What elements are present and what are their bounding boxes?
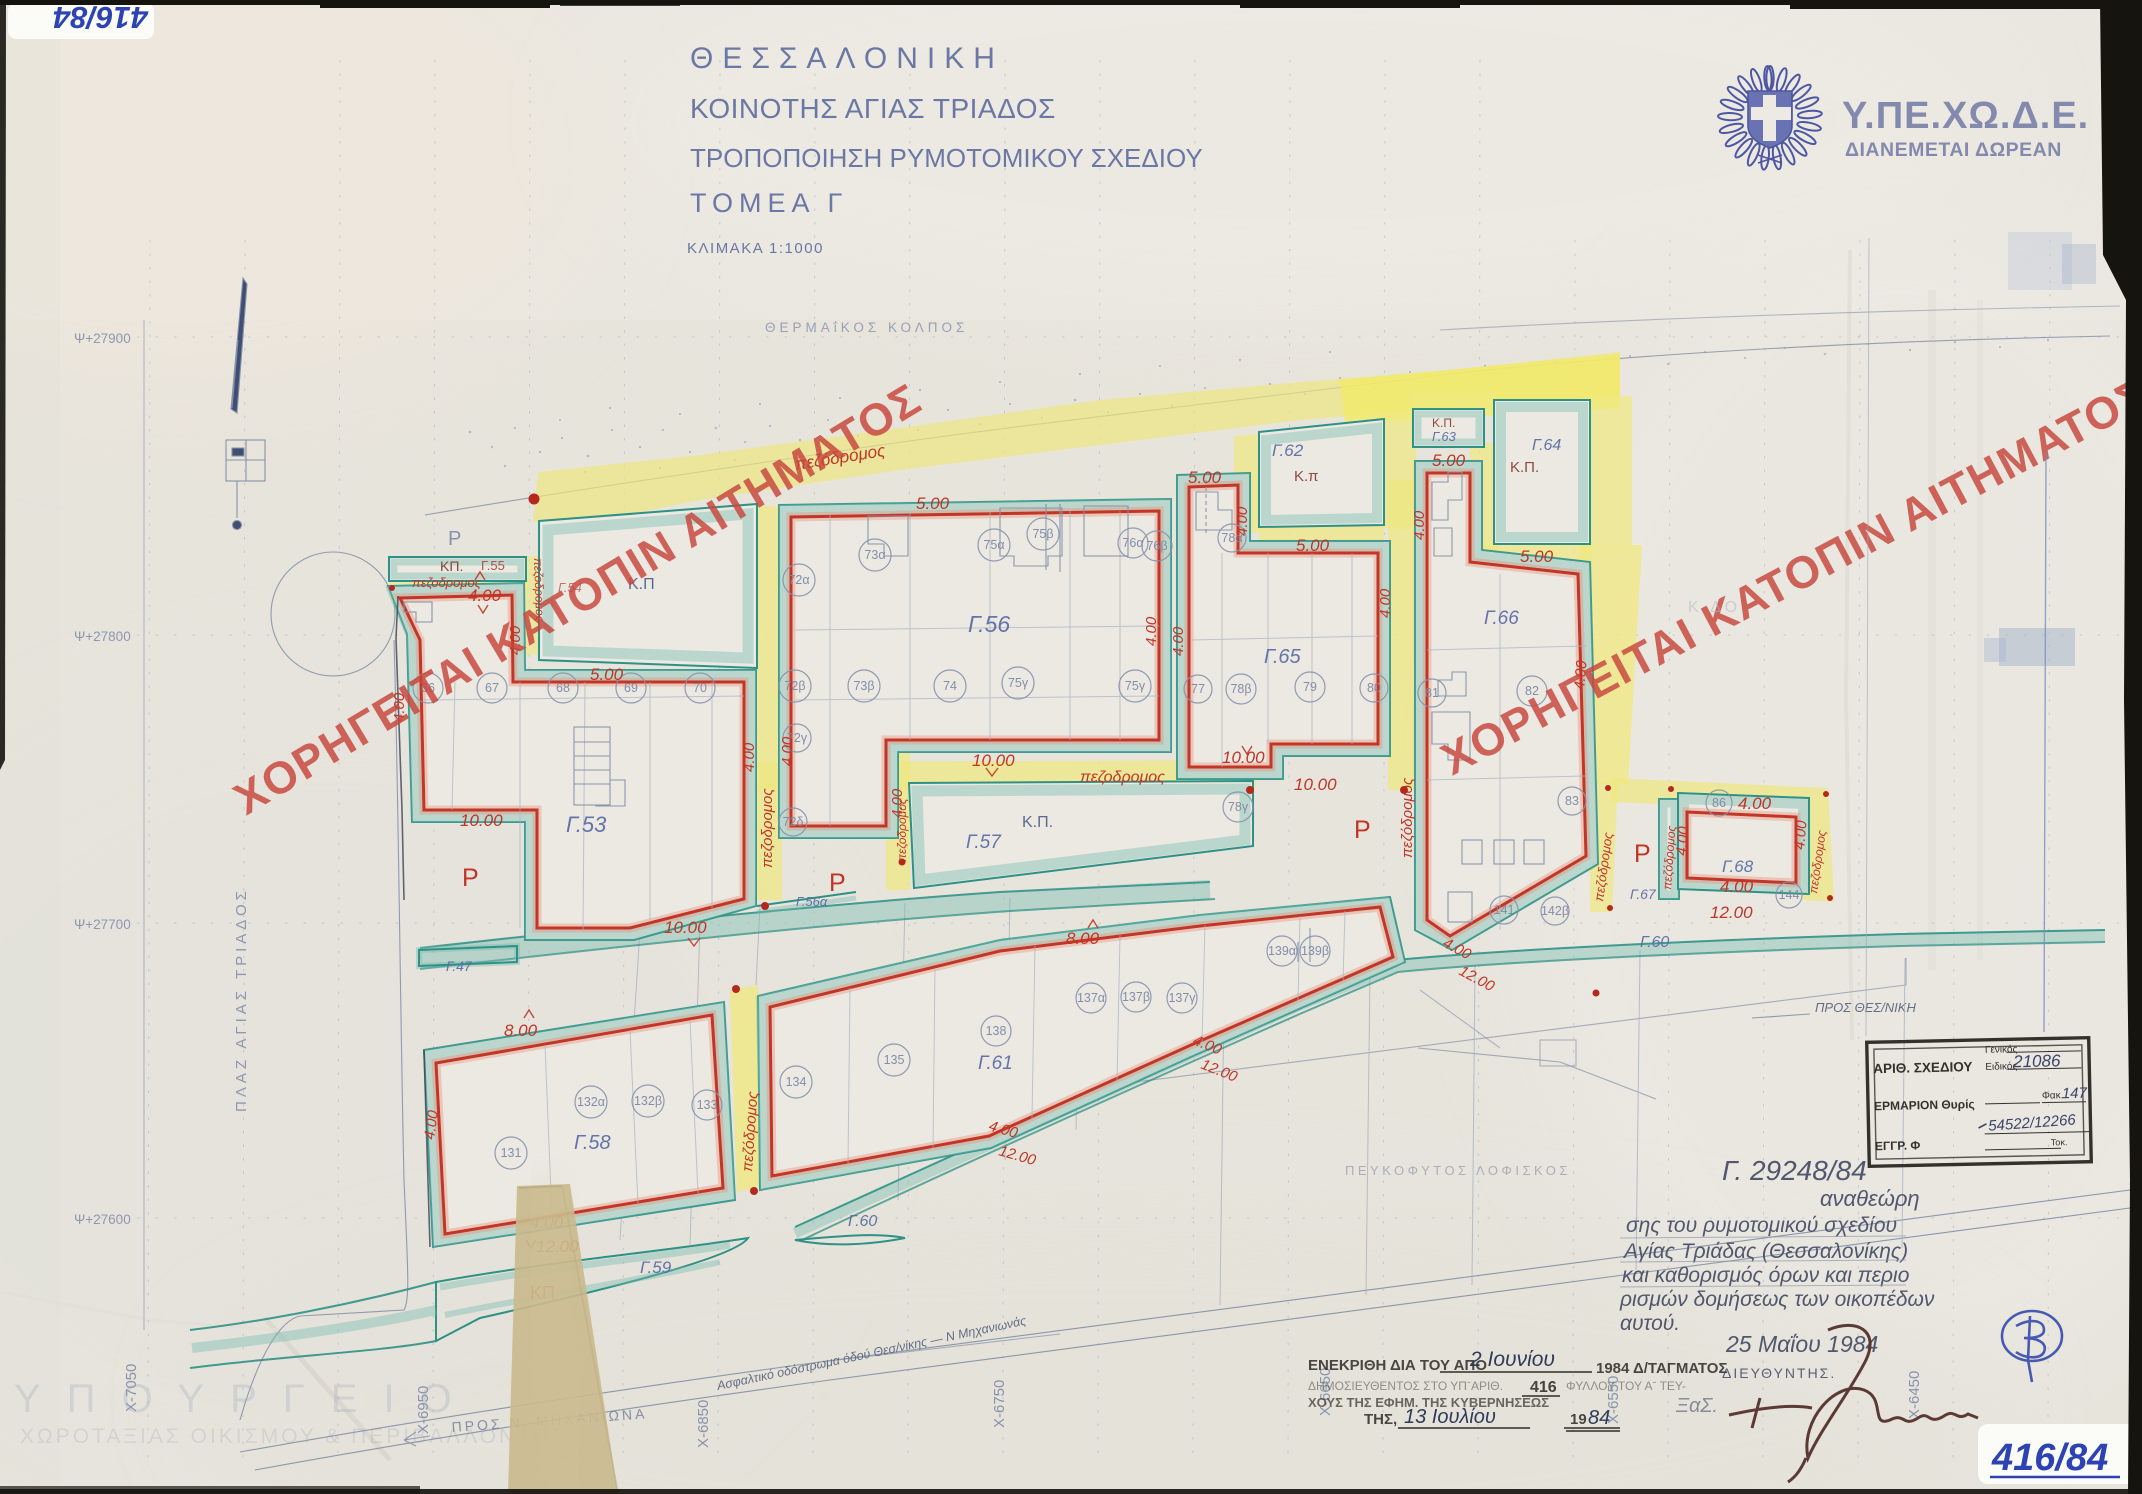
svg-text:5.00: 5.00	[1432, 451, 1466, 470]
svg-text:139α: 139α	[1268, 944, 1296, 958]
svg-text:78γ: 78γ	[1228, 800, 1249, 814]
svg-text:ΘΕΣΣΑΛΟΝΙΚΗ: ΘΕΣΣΑΛΟΝΙΚΗ	[690, 42, 1004, 75]
svg-text:4.00: 4.00	[468, 586, 502, 605]
svg-text:Υ.ΠΕ.ΧΩ.Δ.Ε.: Υ.ΠΕ.ΧΩ.Δ.Ε.	[1842, 95, 2089, 137]
svg-text:147: 147	[2062, 1085, 2088, 1103]
svg-text:ρισμών δομήσεως των οικοπέδων: ρισμών δομήσεως των οικοπέδων	[1619, 1288, 1935, 1311]
svg-text:Κ ΔΟ: Κ ΔΟ	[1688, 599, 1741, 616]
svg-text:76β: 76β	[1146, 539, 1167, 553]
svg-text:8.00: 8.00	[504, 1021, 538, 1040]
svg-text:ΕΓΓΡ. Φ: ΕΓΓΡ. Φ	[1875, 1138, 1921, 1153]
svg-text:Κ.π: Κ.π	[1294, 468, 1319, 485]
svg-text:132α: 132α	[577, 1095, 605, 1109]
svg-text:ΚΟΙΝΟΤΗΣ ΑΓΙΑΣ ΤΡΙΑΔΟΣ: ΚΟΙΝΟΤΗΣ ΑΓΙΑΣ ΤΡΙΑΔΟΣ	[690, 93, 1056, 124]
svg-text:138: 138	[986, 1024, 1007, 1038]
svg-text:132β: 132β	[634, 1094, 662, 1108]
svg-text:8.00: 8.00	[1066, 929, 1100, 948]
svg-text:86: 86	[1712, 796, 1726, 810]
svg-text:Γ.66: Γ.66	[1484, 608, 1519, 629]
svg-text:Χ-6450: Χ-6450	[1906, 1371, 1923, 1419]
svg-text:Αγίας Τριάδας (Θεσσαλονίκης): Αγίας Τριάδας (Θεσσαλονίκης)	[1622, 1240, 1908, 1263]
svg-text:25 Μαΐου 1984: 25 Μαΐου 1984	[1725, 1331, 1878, 1357]
svg-text:Γ.65: Γ.65	[1264, 646, 1302, 668]
svg-text:4.00: 4.00	[1720, 877, 1754, 896]
svg-text:133: 133	[697, 1098, 718, 1112]
svg-text:416: 416	[1530, 1379, 1557, 1396]
svg-text:10.00: 10.00	[1294, 775, 1337, 794]
svg-text:134: 134	[786, 1075, 807, 1089]
svg-text:ΞαΣ.: ΞαΣ.	[1675, 1395, 1718, 1417]
svg-text:Φακ.: Φακ.	[2042, 1090, 2064, 1101]
svg-text:Γ.60: Γ.60	[1640, 934, 1669, 951]
svg-text:ΠΛΑΖ ΑΓΙΑΣ ΤΡΙΑΔΟΣ: ΠΛΑΖ ΑΓΙΑΣ ΤΡΙΑΔΟΣ	[233, 887, 250, 1112]
svg-text:75γ: 75γ	[1125, 679, 1146, 693]
svg-text:ΤΟΜΕΑ Γ: ΤΟΜΕΑ Γ	[690, 188, 848, 218]
svg-text:137γ: 137γ	[1168, 991, 1196, 1005]
svg-text:21086: 21086	[2012, 1051, 2061, 1071]
svg-text:ΠΕΥΚΟΦΥΤΟΣ ΛΟΦΙΣΚΟΣ: ΠΕΥΚΟΦΥΤΟΣ ΛΟΦΙΣΚΟΣ	[1345, 1163, 1571, 1178]
svg-text:αναθεώρη: αναθεώρη	[1820, 1186, 1920, 1211]
svg-text:141: 141	[1494, 903, 1515, 917]
svg-text:4.00: 4.00	[1143, 616, 1160, 646]
svg-text:75α: 75α	[983, 538, 1004, 552]
svg-text:4.00: 4.00	[889, 788, 906, 818]
svg-text:ΔΗΜΟΣΙΕΥΘΕΝΤΟΣ ΣΤΟ ΥΠˉΑΡΙΘ.: ΔΗΜΟΣΙΕΥΘΕΝΤΟΣ ΣΤΟ ΥΠˉΑΡΙΘ.	[1308, 1379, 1503, 1393]
svg-text:Γ.53: Γ.53	[566, 812, 607, 837]
svg-text:Χ-6850: Χ-6850	[695, 1400, 712, 1448]
svg-text:83: 83	[1565, 794, 1579, 808]
svg-text:72α: 72α	[788, 573, 809, 587]
svg-text:5.00: 5.00	[1188, 468, 1222, 487]
svg-text:4.00: 4.00	[1234, 506, 1251, 536]
svg-text:5.00: 5.00	[590, 665, 624, 684]
svg-text:416/84: 416/84	[53, 0, 149, 35]
svg-text:Γ.64: Γ.64	[1532, 437, 1561, 454]
svg-text:5.00: 5.00	[1520, 547, 1554, 566]
svg-text:76α: 76α	[1122, 536, 1143, 550]
svg-text:Γ. 29248/84: Γ. 29248/84	[1722, 1155, 1867, 1186]
svg-text:4.00: 4.00	[1411, 510, 1428, 540]
svg-text:80: 80	[1367, 681, 1381, 695]
svg-text:144: 144	[1779, 888, 1800, 902]
svg-text:Χ-6750: Χ-6750	[991, 1380, 1008, 1428]
svg-text:81: 81	[1425, 686, 1439, 700]
svg-text:Γ.63: Γ.63	[1432, 429, 1457, 444]
svg-text:ΕΡΜΑΡΙΟΝ Θυρίς: ΕΡΜΑΡΙΟΝ Θυρίς	[1874, 1097, 1975, 1113]
svg-text:ΔΙΕΥΘΥΝΤΗΣ.: ΔΙΕΥΘΥΝΤΗΣ.	[1722, 1365, 1836, 1381]
svg-text:84: 84	[1588, 1407, 1610, 1429]
svg-text:Ρ: Ρ	[448, 528, 461, 550]
svg-text:Γ.47: Γ.47	[446, 958, 473, 974]
svg-text:73α: 73α	[864, 548, 885, 562]
svg-text:79: 79	[1303, 680, 1317, 694]
svg-text:13 Ιουλίου: 13 Ιουλίου	[1404, 1406, 1496, 1428]
svg-text:12.00: 12.00	[1710, 903, 1753, 922]
svg-text:ΚΠ.: ΚΠ.	[440, 558, 463, 574]
svg-text:10.00: 10.00	[664, 918, 707, 937]
svg-text:75β: 75β	[1032, 527, 1053, 541]
svg-text:ΘΕΡΜΑΐΚΟΣ ΚΟΛΠΟΣ: ΘΕΡΜΑΐΚΟΣ ΚΟΛΠΟΣ	[765, 320, 968, 335]
svg-text:και καθορισμός όρων και περιο: και καθορισμός όρων και περιο	[1622, 1264, 1910, 1287]
svg-text:67: 67	[485, 681, 499, 695]
svg-text:137α: 137α	[1077, 991, 1105, 1005]
svg-text:78β: 78β	[1230, 682, 1251, 696]
svg-text:4.00: 4.00	[1377, 588, 1394, 618]
svg-text:4.00: 4.00	[741, 742, 758, 772]
svg-text:135: 135	[884, 1053, 905, 1067]
svg-text:Τοκ.: Τοκ.	[2051, 1137, 2068, 1147]
svg-text:πεζοδρομος: πεζοδρομος	[1080, 769, 1165, 786]
svg-text:ΔΙΑΝΕΜΕΤΑΙ ΔΩΡΕΑΝ: ΔΙΑΝΕΜΕΤΑΙ ΔΩΡΕΑΝ	[1845, 139, 2062, 161]
svg-text:10.00: 10.00	[1222, 748, 1265, 767]
svg-text:Γ.59: Γ.59	[640, 1258, 672, 1277]
svg-text:Κ.Π.: Κ.Π.	[1510, 459, 1539, 476]
svg-text:Ρ: Ρ	[462, 864, 479, 892]
svg-text:αυτού.: αυτού.	[1620, 1312, 1680, 1335]
svg-text:Γ.58: Γ.58	[574, 1132, 611, 1154]
svg-text:ΦΥΛΛΟΥ ΤΟΥ Αˉ ΤΕΥ-: ΦΥΛΛΟΥ ΤΟΥ Αˉ ΤΕΥ-	[1566, 1379, 1686, 1393]
svg-text:Ρ: Ρ	[829, 869, 846, 897]
svg-text:Γ.56: Γ.56	[968, 611, 1010, 637]
svg-text:4.00: 4.00	[1791, 819, 1811, 850]
svg-text:19: 19	[1570, 1411, 1587, 1428]
svg-text:Γ.57: Γ.57	[966, 832, 1002, 853]
svg-text:10.00: 10.00	[972, 751, 1015, 770]
svg-text:ΥΠΟΥΡΓΕΙΟ: ΥΠΟΥΡΓΕΙΟ	[14, 1377, 478, 1421]
svg-text:69: 69	[624, 681, 638, 695]
svg-text:Γ.68: Γ.68	[1722, 857, 1754, 876]
svg-text:10.00: 10.00	[460, 811, 503, 830]
svg-text:77: 77	[1191, 682, 1205, 696]
svg-text:5.00: 5.00	[916, 494, 950, 513]
svg-text:137β: 137β	[1122, 990, 1150, 1004]
svg-text:Γ.60: Γ.60	[848, 1213, 877, 1230]
svg-text:142β: 142β	[1541, 904, 1569, 918]
svg-text:Κ.Π.: Κ.Π.	[1022, 814, 1053, 831]
svg-text:5.00: 5.00	[1296, 536, 1330, 555]
svg-text:131: 131	[501, 1146, 522, 1160]
svg-text:4.00: 4.00	[1673, 825, 1693, 856]
svg-text:Γ.55: Γ.55	[481, 558, 505, 573]
svg-text:Κ.Π.: Κ.Π.	[1432, 416, 1455, 430]
svg-text:72β: 72β	[784, 679, 805, 693]
svg-text:ΤΡΟΠΟΠΟΙΗΣΗ ΡΥΜΟΤΟΜΙΚΟΥ ΣΧΕΔΙ: ΤΡΟΠΟΠΟΙΗΣΗ ΡΥΜΟΤΟΜΙΚΟΥ ΣΧΕΔΙΟΥ	[690, 143, 1203, 173]
svg-text:1984 Δ/ΤΑΓΜΑΤΟΣ: 1984 Δ/ΤΑΓΜΑΤΟΣ	[1596, 1360, 1727, 1377]
svg-text:416/84: 416/84	[1991, 1437, 2108, 1479]
svg-text:Ψ+27700: Ψ+27700	[74, 917, 131, 932]
svg-text:Ψ+27600: Ψ+27600	[74, 1212, 131, 1227]
svg-text:Ρ: Ρ	[1634, 840, 1651, 868]
svg-text:73β: 73β	[853, 679, 874, 693]
svg-text:ΑΡΙΘ. ΣΧΕΔΙΟΥ: ΑΡΙΘ. ΣΧΕΔΙΟΥ	[1873, 1059, 1972, 1076]
svg-text:Ψ+27900: Ψ+27900	[74, 331, 131, 346]
svg-text:4.00: 4.00	[1170, 626, 1187, 656]
svg-text:68: 68	[556, 681, 570, 695]
svg-text:4.00: 4.00	[1738, 794, 1772, 813]
svg-text:Γ.67: Γ.67	[1630, 886, 1657, 902]
svg-text:Γ.56α: Γ.56α	[796, 894, 828, 909]
svg-text:74: 74	[943, 679, 957, 693]
svg-text:75γ: 75γ	[1008, 676, 1029, 690]
svg-text:70: 70	[693, 681, 707, 695]
svg-text:139β: 139β	[1301, 944, 1329, 958]
svg-text:σης του ρυμοτομικού σχεδίου: σης του ρυμοτομικού σχεδίου	[1626, 1214, 1897, 1237]
svg-text:Γ.61: Γ.61	[978, 1053, 1013, 1074]
svg-text:2 Ιουνίου: 2 Ιουνίου	[1469, 1348, 1555, 1371]
svg-text:4.00: 4.00	[779, 736, 796, 766]
svg-text:Γ.62: Γ.62	[1272, 441, 1304, 460]
svg-text:πεζοδρομος: πεζοδρομος	[759, 788, 776, 868]
svg-text:ΚΛΙΜΑΚΑ 1:1000: ΚΛΙΜΑΚΑ 1:1000	[687, 240, 824, 257]
svg-text:72δ: 72δ	[783, 815, 804, 829]
svg-text:ΤΗΣ,: ΤΗΣ,	[1364, 1411, 1397, 1428]
svg-text:Ψ+27800: Ψ+27800	[74, 629, 131, 644]
svg-text:Ρ: Ρ	[1354, 816, 1371, 844]
